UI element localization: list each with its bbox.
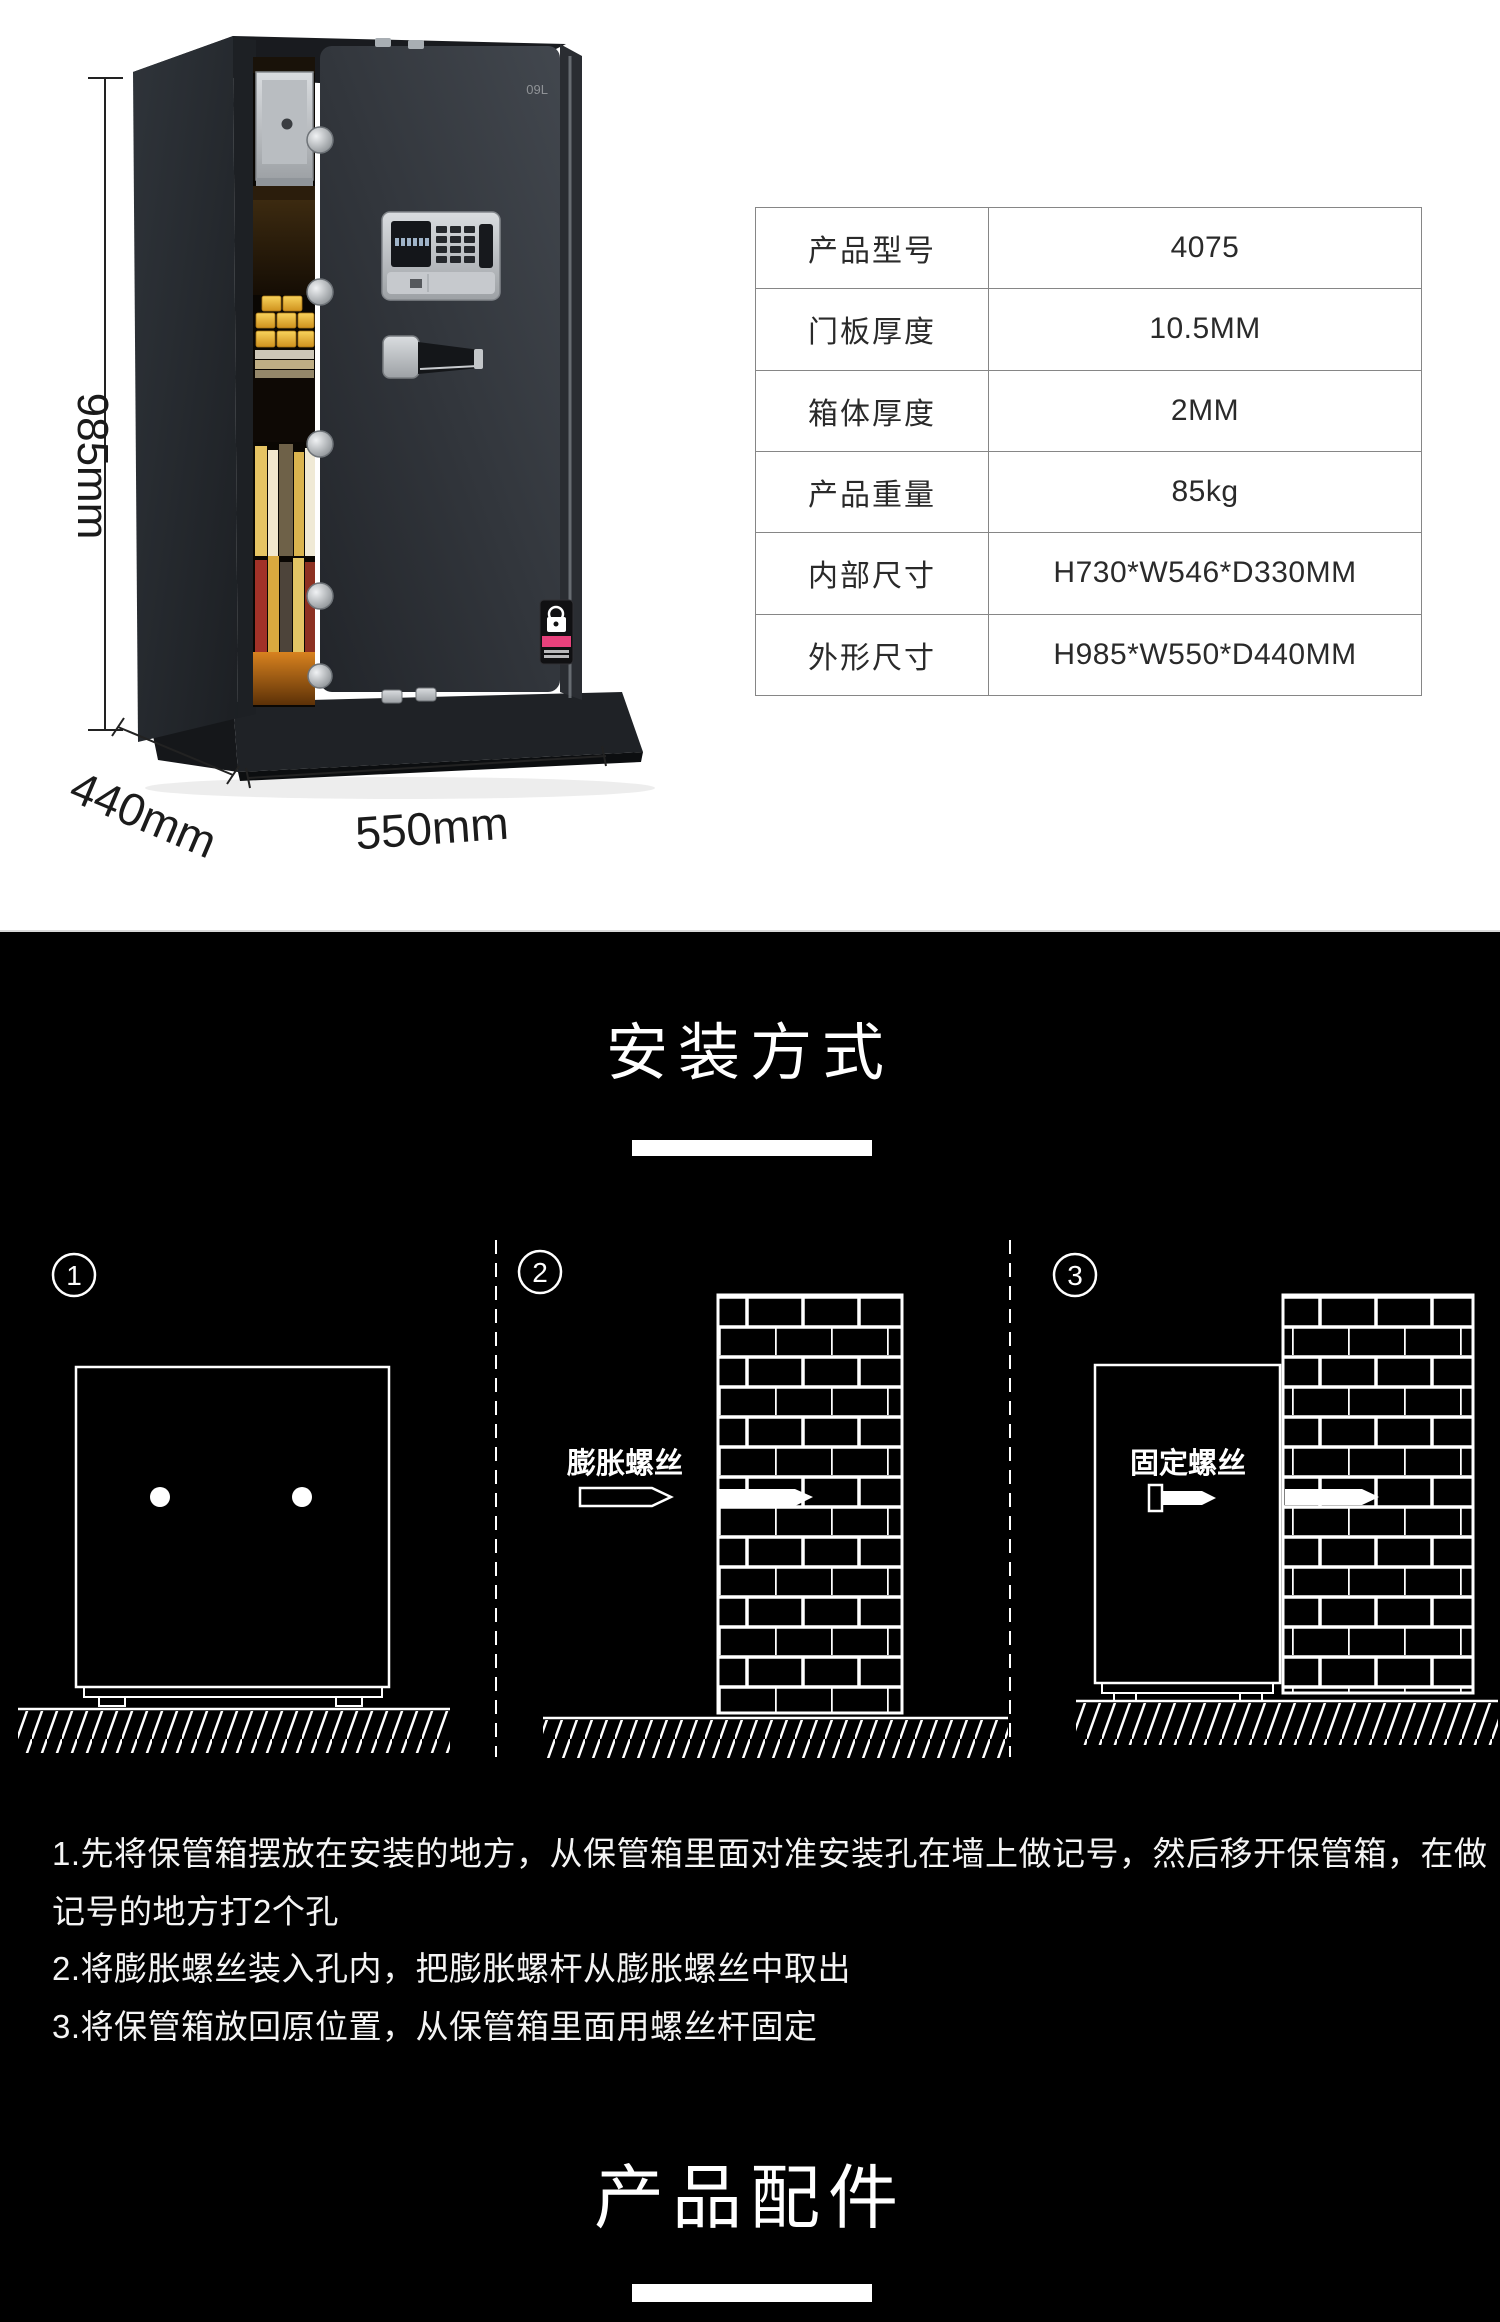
table-row: 门板厚度 10.5MM	[756, 289, 1422, 370]
safe-base-outline	[1102, 1683, 1273, 1693]
diagram-step-1: 1	[2, 1235, 494, 1760]
instruction-line: 3.将保管箱放回原位置，从保管箱里面用螺丝杆固定	[52, 1998, 1488, 2056]
install-section-title: 安装方式	[0, 1002, 1500, 1092]
safe-product-image: 09L	[0, 0, 700, 940]
table-row: 箱体厚度 2MM	[756, 370, 1422, 451]
safe-front-outline	[76, 1367, 389, 1687]
instruction-line: 记号的地方打2个孔	[52, 1883, 1488, 1941]
spec-label: 门板厚度	[756, 289, 989, 370]
spec-value: H730*W546*D330MM	[989, 533, 1422, 614]
book-row-upper	[255, 444, 315, 556]
brand-mark: 09L	[526, 82, 548, 97]
spec-value: H985*W550*D440MM	[989, 614, 1422, 695]
stacked-books	[255, 350, 314, 378]
ground-hatch	[18, 1711, 450, 1753]
dimension-width-label: 550mm	[354, 797, 511, 860]
title-underline-bar	[632, 1140, 872, 1156]
screw-in-wall	[1285, 1489, 1379, 1505]
anchor-bolt	[416, 688, 436, 701]
step-number: 3	[1067, 1260, 1083, 1291]
diagram-step-3: 3 固定螺丝	[1012, 1235, 1500, 1760]
dimension-depth-label: 440mm	[63, 760, 225, 868]
product-overview-section: 09L	[0, 0, 1500, 930]
step-number: 2	[532, 1257, 548, 1288]
anchor-bolt	[382, 690, 402, 703]
ground-hatch	[543, 1720, 1008, 1758]
table-row: 外形尺寸 H985*W550*D440MM	[756, 614, 1422, 695]
safe-side-outline	[1095, 1365, 1280, 1683]
spec-value: 85kg	[989, 451, 1422, 532]
ground-hatch	[1076, 1703, 1498, 1745]
door-hinge-pin	[375, 38, 391, 47]
spec-value: 10.5MM	[989, 289, 1422, 370]
spec-label: 产品重量	[756, 451, 989, 532]
spec-table: 产品型号 4075 门板厚度 10.5MM 箱体厚度 2MM 产品重量 85kg…	[755, 207, 1422, 696]
installation-section: 安装方式 1	[0, 930, 1500, 2322]
safe-interior	[253, 57, 315, 707]
floor-shadow	[145, 777, 655, 799]
sticker-pink-band	[542, 636, 571, 647]
spec-label: 内部尺寸	[756, 533, 989, 614]
fingerprint-slot	[479, 224, 493, 268]
safe-foot	[336, 1697, 362, 1706]
instruction-line: 2.将膨胀螺丝装入孔内，把膨胀螺杆从膨胀螺丝中取出	[52, 1940, 1488, 1998]
table-row: 产品重量 85kg	[756, 451, 1422, 532]
safe-left-face	[133, 36, 238, 742]
title-underline-bar	[632, 2284, 872, 2302]
inner-lockbox-keyhole	[282, 119, 293, 130]
screw-in-wall	[718, 1489, 813, 1506]
safe-door: 09L	[307, 38, 582, 703]
spec-label: 产品型号	[756, 208, 989, 289]
book-row-lower	[255, 556, 315, 652]
table-row: 产品型号 4075	[756, 208, 1422, 289]
safe-base-outline	[84, 1687, 382, 1697]
spec-value: 2MM	[989, 370, 1422, 451]
screw-label: 膨胀螺丝	[567, 1447, 683, 1480]
anchor-hole	[292, 1487, 312, 1507]
dimension-height-label: 985mm	[68, 393, 117, 540]
install-instructions: 1.先将保管箱摆放在安装的地方，从保管箱里面对准安装孔在墙上做记号，然后移开保管…	[52, 1825, 1488, 2055]
anchor-hole	[150, 1487, 170, 1507]
screw-label: 固定螺丝	[1130, 1446, 1246, 1480]
instruction-line: 1.先将保管箱摆放在安装的地方，从保管箱里面对准安装孔在墙上做记号，然后移开保管…	[52, 1825, 1488, 1883]
security-sticker	[540, 600, 573, 664]
safe-foot	[99, 1697, 125, 1706]
spec-value: 4075	[989, 208, 1422, 289]
accessories-section-title: 产品配件	[0, 2142, 1500, 2243]
keypad-icon	[382, 212, 500, 300]
spec-label: 箱体厚度	[756, 370, 989, 451]
diagram-step-2: 2 膨胀螺丝	[495, 1235, 1012, 1760]
table-row: 内部尺寸 H730*W546*D330MM	[756, 533, 1422, 614]
product-detail-page: 09L	[0, 0, 1500, 2322]
door-hinge-pin	[408, 40, 424, 49]
spec-label: 外形尺寸	[756, 614, 989, 695]
expansion-screw-icon	[580, 1488, 671, 1506]
step-number: 1	[66, 1260, 82, 1291]
fixing-screw-icon	[1149, 1485, 1216, 1511]
